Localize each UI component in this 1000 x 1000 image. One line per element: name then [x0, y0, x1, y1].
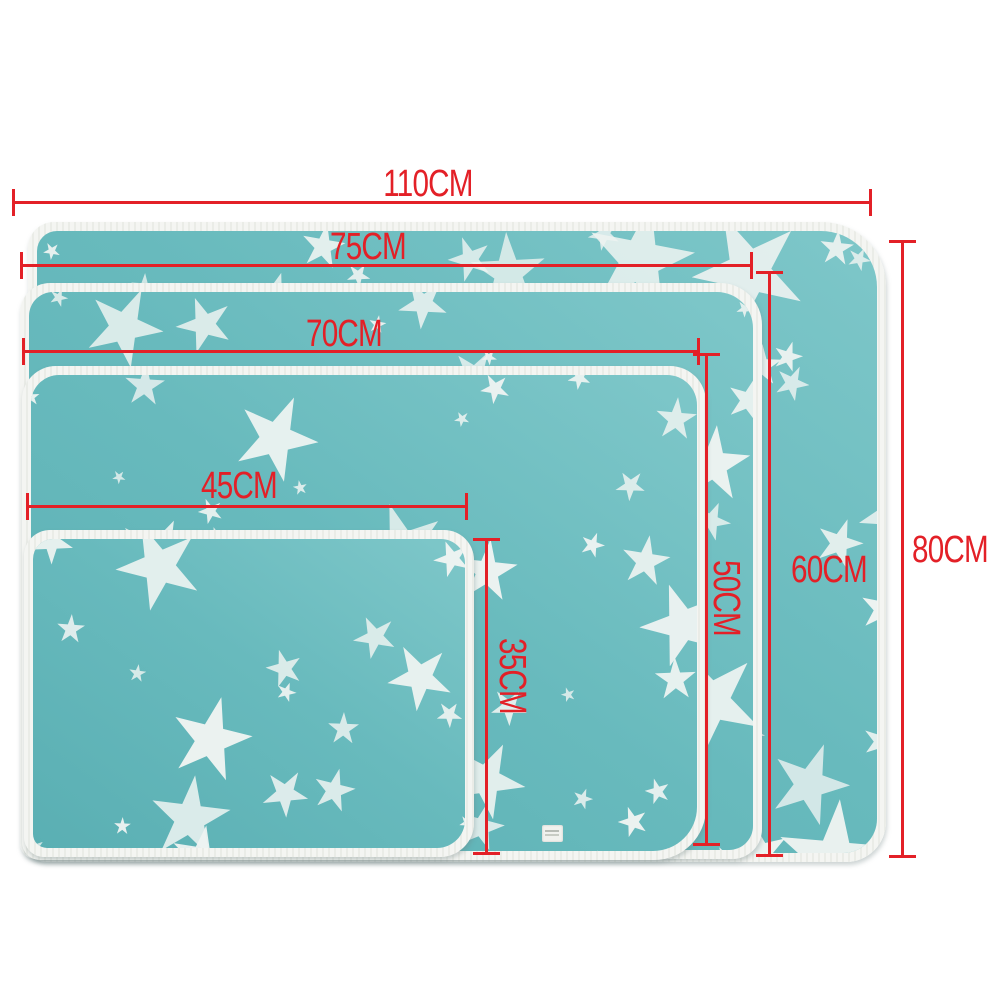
star-icon: [723, 372, 753, 424]
star-icon: [33, 835, 47, 848]
star-icon: [45, 292, 70, 309]
star-icon: [614, 802, 651, 839]
star-icon: [113, 817, 130, 834]
dimension-line-height-80cm: [901, 240, 904, 858]
star-icon: [734, 297, 753, 320]
star-icon: [309, 763, 359, 813]
star-icon: [654, 656, 696, 698]
star-icon: [347, 606, 405, 664]
dimension-label-75cm: 75CM: [330, 228, 406, 266]
star-icon: [855, 716, 877, 765]
star-pattern: [33, 539, 465, 848]
star-icon: [630, 566, 697, 679]
star-icon: [147, 771, 235, 848]
star-icon: [559, 685, 577, 703]
dimension-line-height-60cm: [768, 271, 771, 857]
star-icon: [391, 292, 458, 336]
star-icon: [564, 375, 596, 393]
star-icon: [127, 663, 146, 682]
star-icon: [40, 239, 63, 262]
star-icon: [109, 467, 127, 485]
star-icon: [456, 812, 465, 833]
dimension-line-height-35cm: [485, 538, 488, 855]
dimension-label-70cm: 70CM: [306, 315, 382, 353]
dimension-label-35cm: 35CM: [493, 638, 531, 714]
star-icon: [56, 613, 86, 643]
star-icon: [33, 539, 82, 569]
star-icon: [124, 375, 166, 405]
star-icon: [429, 539, 465, 583]
star-icon: [578, 529, 609, 560]
mat-45x35: [24, 530, 474, 857]
star-icon: [611, 464, 652, 505]
care-label-tag-icon: [542, 825, 563, 842]
star-icon: [570, 785, 595, 810]
star-icon: [256, 760, 318, 822]
star-icon: [589, 848, 610, 851]
dimension-label-80cm: 80CM: [912, 531, 988, 569]
dimension-label-50cm: 50CM: [707, 560, 745, 636]
star-icon: [163, 688, 259, 784]
dimension-label-60cm: 60CM: [791, 551, 867, 589]
dimension-label-45cm: 45CM: [201, 467, 277, 505]
star-icon: [103, 539, 212, 617]
star-icon: [431, 696, 465, 731]
star-icon: [654, 395, 697, 439]
star-icon: [327, 711, 359, 743]
star-icon: [475, 375, 514, 406]
star-icon: [770, 337, 806, 373]
star-icon: [761, 731, 860, 830]
star-icon: [76, 292, 176, 373]
star-icon: [618, 531, 673, 586]
star-icon: [818, 231, 855, 265]
star-icon: [642, 775, 672, 805]
mat-fabric: [33, 539, 465, 848]
dimension-label-110cm: 110CM: [383, 165, 472, 203]
star-icon: [262, 645, 306, 689]
star-icon: [272, 678, 299, 705]
mat-size-diagram: 110CM 75CM 70CM 45CM 80CM 60CM 50CM 35CM: [0, 0, 1000, 1000]
star-icon: [452, 407, 473, 428]
star-icon: [442, 231, 497, 285]
star-icon: [31, 388, 40, 405]
star-icon: [291, 479, 308, 496]
